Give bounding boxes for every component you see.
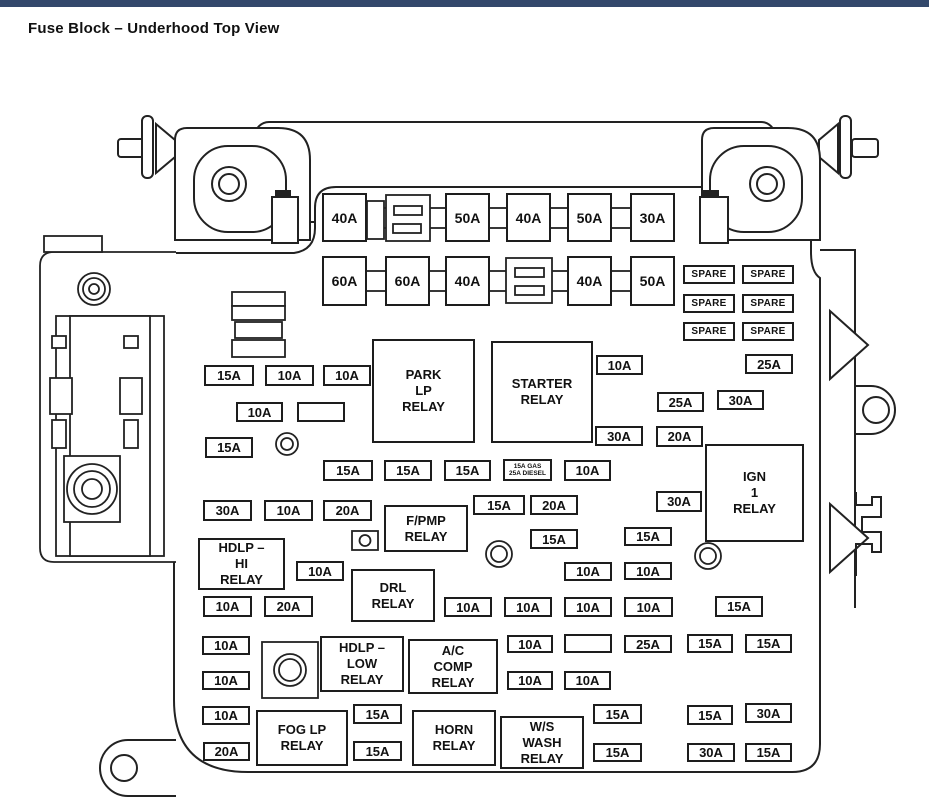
fuse-10a: 10A xyxy=(596,355,643,375)
fuse-25a: 25A xyxy=(657,392,704,412)
fuse-20a: 20A xyxy=(656,426,703,447)
fuse-amp-label: 10A xyxy=(608,358,632,373)
fuse-20a: 20A xyxy=(203,742,250,761)
fuse-25a: 25A xyxy=(745,354,793,374)
fuse-amp-label: 10A xyxy=(214,708,238,723)
fuse-amp-label: 15A xyxy=(217,368,241,383)
relay-label-line: HORN xyxy=(435,722,473,738)
fuse-amp-label: 30A xyxy=(699,745,723,760)
empty-fuse-slot xyxy=(297,402,345,422)
fuse-amp-label: 40A xyxy=(332,210,358,226)
fuse-10a: 10A xyxy=(203,596,252,617)
fuse-10a: 10A xyxy=(236,402,283,422)
fuse-amp-label: 15A xyxy=(606,707,630,722)
fuse-15a: 15A xyxy=(530,529,578,549)
fuse-15a: 15A xyxy=(323,460,373,481)
fuse-amp-label: 10A xyxy=(636,564,660,579)
spare-fuse-slot: SPARE xyxy=(683,265,735,284)
fuse-amp-label: 15A xyxy=(366,744,390,759)
fuse-10a: 10A xyxy=(564,597,612,617)
maxi-fuse-60a: 60A xyxy=(322,256,367,306)
fuse-amp-label: 10A xyxy=(576,673,600,688)
fuse-amp-label: 10A xyxy=(248,405,272,420)
fuse-10a: 10A xyxy=(296,561,344,581)
fuse-amp-label: 15A xyxy=(217,440,241,455)
fuse-15a: 15A xyxy=(384,460,432,481)
fuse-amp-label: 15A xyxy=(757,636,781,651)
fuse-15a: 15A xyxy=(353,704,402,724)
fuse-amp-label: 10A xyxy=(576,564,600,579)
fuse-amp-label: 60A xyxy=(395,273,421,289)
ign-1-relay: IGN1RELAY xyxy=(705,444,804,542)
maxi-fuse-50a: 50A xyxy=(567,193,612,242)
fuse-amp-line: 15A GAS xyxy=(509,463,546,470)
fuse-15a: 15A xyxy=(593,704,642,724)
fuse-15a: 15A xyxy=(715,596,763,617)
fuse-15a: 15A xyxy=(687,634,733,653)
fuse-15a: 15A xyxy=(444,460,491,481)
spare-fuse-slot: SPARE xyxy=(683,322,735,341)
fuse-20a: 20A xyxy=(530,495,578,515)
fuse-10a: 10A xyxy=(564,562,612,581)
fuse-amp-label: 15A xyxy=(727,599,751,614)
f-pmp-relay: F/PMPRELAY xyxy=(384,505,468,552)
fuse-amp-label: 10A xyxy=(637,600,661,615)
fuse-amp-label: 10A xyxy=(214,638,238,653)
relay-label-line: RELAY xyxy=(405,529,448,545)
spare-label: SPARE xyxy=(750,298,785,309)
empty-fuse-slot xyxy=(564,634,612,653)
fuse-amp-label: 15A xyxy=(636,529,660,544)
relay-label-line: RELAY xyxy=(733,501,776,517)
fuse-amp-label: 10A xyxy=(576,463,600,478)
fuse-10a: 10A xyxy=(504,597,552,617)
maxi-fuse-40a: 40A xyxy=(445,256,490,306)
ws-wash-relay: W/SWASHRELAY xyxy=(500,716,584,769)
fuse-amp-label: 10A xyxy=(518,637,542,652)
relay-label-line: A/C xyxy=(442,643,464,659)
fuse-amp-label: 20A xyxy=(542,498,566,513)
fuse-30a: 30A xyxy=(656,491,702,512)
fuse-amp-label: 60A xyxy=(332,273,358,289)
maxi-fuse-50a: 50A xyxy=(630,256,675,306)
fuse-20a: 20A xyxy=(323,500,372,521)
fuse-amp-label: 10A xyxy=(518,673,542,688)
horn-relay: HORNRELAY xyxy=(412,710,496,766)
spare-label: SPARE xyxy=(750,269,785,280)
fuse-30a: 30A xyxy=(203,500,252,521)
fuse-15a: 15A xyxy=(204,365,254,386)
fog-lp-relay: FOG LPRELAY xyxy=(256,710,348,766)
spare-fuse-slot: SPARE xyxy=(742,265,794,284)
relay-label-line: PARK xyxy=(406,367,442,383)
spare-label: SPARE xyxy=(750,326,785,337)
fuse-amp-label: 30A xyxy=(607,429,631,444)
maxi-fuse-40a: 40A xyxy=(506,193,551,242)
fuse-15a: 15A xyxy=(745,634,792,653)
fuse-10a: 10A xyxy=(264,500,313,521)
spare-label: SPARE xyxy=(691,326,726,337)
fuse-amp-label: 30A xyxy=(667,494,691,509)
fuse-amp-label: 50A xyxy=(455,210,481,226)
fuse-15a: 15A xyxy=(205,437,253,458)
fuse-amp-label: 10A xyxy=(516,600,540,615)
fuse-10a: 10A xyxy=(507,671,553,690)
relay-label-line: LOW xyxy=(347,656,377,672)
fuse-10a: 10A xyxy=(202,636,250,655)
fuse-15a: 15A xyxy=(687,705,733,725)
fuse-amp-label: 25A xyxy=(636,637,660,652)
fuse-amp-label: 30A xyxy=(729,393,753,408)
spare-label: SPARE xyxy=(691,269,726,280)
fuse-amp-label: 15A xyxy=(757,745,781,760)
spare-label: SPARE xyxy=(691,298,726,309)
fuse-25a: 25A xyxy=(624,635,672,653)
relay-label-line: RELAY xyxy=(372,596,415,612)
maxi-fuse-40a: 40A xyxy=(567,256,612,306)
relay-label-line: 1 xyxy=(751,485,758,501)
fuse-amp-label: 10A xyxy=(335,368,359,383)
relay-label-line: RELAY xyxy=(521,392,564,408)
fuse-10a: 10A xyxy=(624,597,673,617)
park-lp-relay: PARKLPRELAY xyxy=(372,339,475,443)
maxi-fuse-50a: 50A xyxy=(445,193,490,242)
fuse-amp-label: 15A xyxy=(542,532,566,547)
fuse-10a: 10A xyxy=(202,671,250,690)
fuse-amp-label: 10A xyxy=(278,368,302,383)
relay-label-line: HDLP – xyxy=(339,640,385,656)
fuse-amp-label: 20A xyxy=(668,429,692,444)
fuse-amp-label: 50A xyxy=(577,210,603,226)
fuse-amp-label: 25A xyxy=(757,357,781,372)
relay-label-line: RELAY xyxy=(521,751,564,767)
component-layer: 40A50A40A50A30A60A60A40A40A50A15A10A10A1… xyxy=(0,0,929,809)
fuse-amp-line: 25A DIESEL xyxy=(509,470,546,477)
fuse-amp-label: 10A xyxy=(214,673,238,688)
fuse-amp-label: 15A xyxy=(698,708,722,723)
fuse-amp-label: 15A xyxy=(487,498,511,513)
fuse-amp-label: 20A xyxy=(215,744,239,759)
relay-label-line: RELAY xyxy=(432,675,475,691)
fuse-10a: 10A xyxy=(323,365,371,386)
fuse-amp-label: 30A xyxy=(757,706,781,721)
fuse-amp-label: 15A xyxy=(698,636,722,651)
fuse-amp-label: 20A xyxy=(336,503,360,518)
fuse-amp-label: 20A xyxy=(277,599,301,614)
fuse-10a: 10A xyxy=(564,671,611,690)
relay-label-line: HI xyxy=(235,556,248,572)
fuse-dual-rating: 15A GAS25A DIESEL xyxy=(503,459,552,481)
fuse-amp-label: 10A xyxy=(277,503,301,518)
fuse-15a: 15A xyxy=(593,743,642,762)
fuse-amp-label: 10A xyxy=(216,599,240,614)
fuse-20a: 20A xyxy=(264,596,313,617)
relay-label-line: COMP xyxy=(434,659,473,675)
maxi-fuse-60a: 60A xyxy=(385,256,430,306)
fuse-amp-label: 10A xyxy=(308,564,332,579)
relay-label-line: FOG LP xyxy=(278,722,326,738)
relay-label-line: STARTER xyxy=(512,376,572,392)
fuse-30a: 30A xyxy=(745,703,792,723)
fuse-amp-label: 15A xyxy=(336,463,360,478)
fuse-15a: 15A xyxy=(745,743,792,762)
fuse-30a: 30A xyxy=(595,426,643,446)
spare-fuse-slot: SPARE xyxy=(742,322,794,341)
fuse-amp-label: 40A xyxy=(455,273,481,289)
fuse-amp-label: 15A xyxy=(456,463,480,478)
starter-relay: STARTERRELAY xyxy=(491,341,593,443)
fuse-amp-label: 30A xyxy=(216,503,240,518)
fuse-15a: 15A xyxy=(624,527,672,546)
spare-fuse-slot: SPARE xyxy=(683,294,735,313)
fuse-10a: 10A xyxy=(265,365,314,386)
drl-relay: DRLRELAY xyxy=(351,569,435,622)
fuse-amp-label: 25A xyxy=(669,395,693,410)
fuse-10a: 10A xyxy=(507,635,553,653)
fuse-amp-label: 15A xyxy=(366,707,390,722)
fuse-amp-label: 10A xyxy=(576,600,600,615)
fuse-amp-label: 10A xyxy=(456,600,480,615)
relay-label-line: W/S xyxy=(530,719,555,735)
relay-label-line: RELAY xyxy=(341,672,384,688)
relay-label-line: RELAY xyxy=(281,738,324,754)
relay-label-line: RELAY xyxy=(433,738,476,754)
hdlp-low-relay: HDLP –LOWRELAY xyxy=(320,636,404,692)
fuse-amp-label: 40A xyxy=(577,273,603,289)
fuse-amp-label: 15A GAS25A DIESEL xyxy=(509,463,546,477)
spare-fuse-slot: SPARE xyxy=(742,294,794,313)
ac-comp-relay: A/CCOMPRELAY xyxy=(408,639,498,694)
fuse-amp-label: 50A xyxy=(640,273,666,289)
fuse-10a: 10A xyxy=(624,562,672,580)
fuse-amp-label: 15A xyxy=(606,745,630,760)
relay-label-line: RELAY xyxy=(402,399,445,415)
fuse-30a: 30A xyxy=(687,743,735,762)
fuse-10a: 10A xyxy=(564,460,611,481)
fuse-block-page: Fuse Block – Underhood Top View xyxy=(0,0,929,809)
fuse-10a: 10A xyxy=(202,706,250,725)
hdlp-hi-relay: HDLP –HIRELAY xyxy=(198,538,285,590)
fuse-30a: 30A xyxy=(717,390,764,410)
fuse-15a: 15A xyxy=(353,741,402,761)
maxi-fuse-40a: 40A xyxy=(322,193,367,242)
fuse-10a: 10A xyxy=(444,597,492,617)
relay-label-line: IGN xyxy=(743,469,766,485)
maxi-fuse-30a: 30A xyxy=(630,193,675,242)
fuse-amp-label: 30A xyxy=(640,210,666,226)
fuse-amp-label: 15A xyxy=(396,463,420,478)
fuse-amp-label: 40A xyxy=(516,210,542,226)
relay-label-line: DRL xyxy=(380,580,407,596)
relay-label-line: WASH xyxy=(523,735,562,751)
relay-label-line: RELAY xyxy=(220,572,263,588)
relay-label-line: F/PMP xyxy=(406,513,446,529)
fuse-15a: 15A xyxy=(473,495,525,515)
relay-label-line: HDLP – xyxy=(219,540,265,556)
relay-label-line: LP xyxy=(415,383,432,399)
